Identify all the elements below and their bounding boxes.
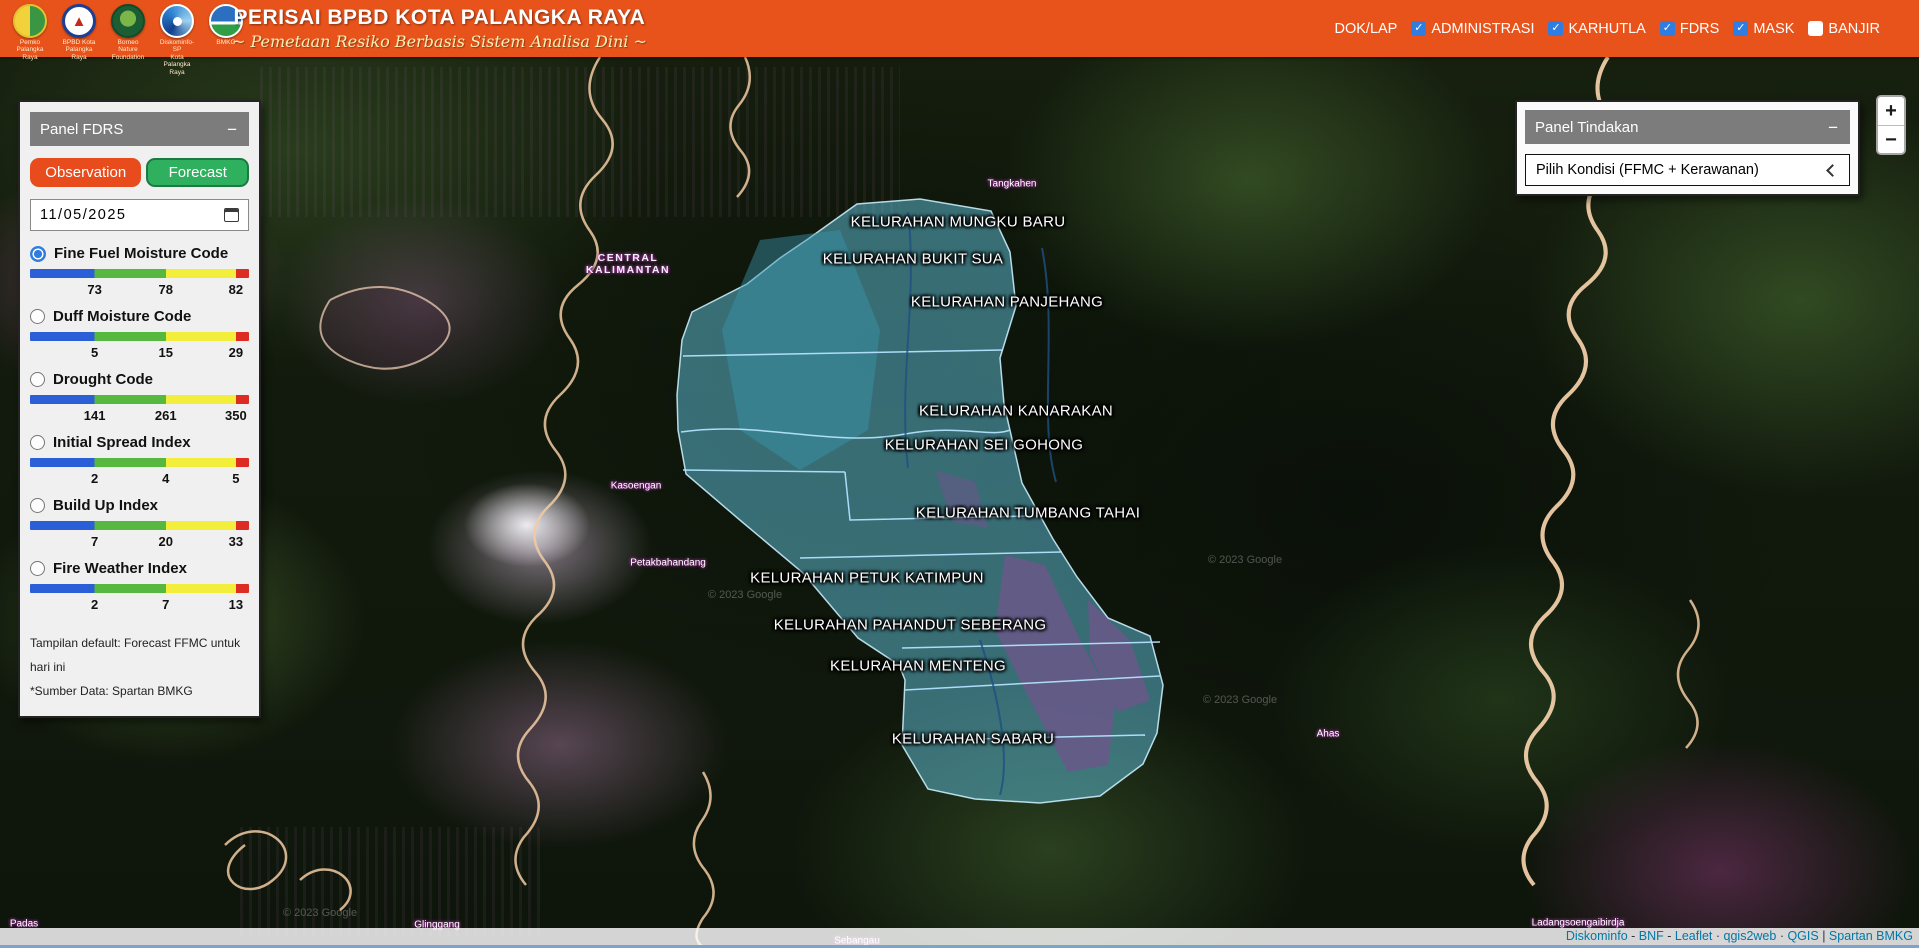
threshold-value: 2 xyxy=(91,597,98,612)
index-thresholds: 2 4 5 xyxy=(30,470,249,487)
threshold-value: 82 xyxy=(229,282,243,297)
kelurahan-label: KELURAHAN PETUK KATIMPUN xyxy=(750,570,984,587)
radio-icon[interactable] xyxy=(30,498,45,513)
layer-nav: DOK/LAP ✓ ADMINISTRASI ✓ KARHUTLA ✓ FDRS… xyxy=(1335,0,1881,57)
layer-toggle[interactable]: ✓ FDRS xyxy=(1660,21,1719,37)
kelurahan-label: KELURAHAN TUMBANG TAHAI xyxy=(916,505,1140,522)
index-radio-row[interactable]: Drought Code xyxy=(30,371,249,388)
place-label: Ahas xyxy=(1317,729,1340,740)
kelurahan-label: KELURAHAN MENTENG xyxy=(830,658,1006,675)
kelurahan-label: KELURAHAN PAHANDUT SEBERANG xyxy=(774,617,1047,634)
layer-toggle[interactable]: ✓ ADMINISTRASI xyxy=(1411,21,1534,37)
google-watermark: © 2023 Google xyxy=(708,589,782,601)
date-input[interactable]: 11/05/2025 xyxy=(30,199,249,231)
checkbox-icon[interactable]: ✓ xyxy=(1548,21,1563,36)
index-label: Duff Moisture Code xyxy=(53,308,191,325)
index-label: Initial Spread Index xyxy=(53,434,191,451)
panel-fdrs-title: Panel FDRS xyxy=(40,121,123,138)
google-watermark: © 2023 Google xyxy=(1208,554,1282,566)
diskominfo-logo: Diskominfo-SP Kota Palangka Raya xyxy=(157,4,197,76)
layer-toggle[interactable]: ✓ MASK xyxy=(1733,21,1794,37)
index-scale-bar xyxy=(30,521,249,530)
select-chevron-icon xyxy=(1826,164,1839,177)
panel-footnotes: Tampilan default: Forecast FFMC untuk ha… xyxy=(30,631,249,703)
threshold-value: 15 xyxy=(159,345,173,360)
google-watermark: © 2023 Google xyxy=(283,907,357,919)
checkbox-icon[interactable]: ✓ xyxy=(1733,21,1748,36)
attribution-link[interactable]: Diskominfo xyxy=(1566,929,1628,943)
threshold-value: 13 xyxy=(229,597,243,612)
fdrs-index-option: Duff Moisture Code 5 15 29 xyxy=(30,308,249,361)
logo-caption: Pemko Palangka Raya xyxy=(10,39,50,61)
index-thresholds: 7 20 33 xyxy=(30,533,249,550)
panel-tindakan-collapse-button[interactable]: − xyxy=(1826,119,1840,136)
kelurahan-label: KELURAHAN SEI GOHONG xyxy=(885,437,1084,454)
pemko-logo: Pemko Palangka Raya xyxy=(10,4,50,76)
logo-caption: Borneo Nature Foundation xyxy=(108,39,148,61)
kelurahan-label: KELURAHAN BUKIT SUA xyxy=(823,251,1003,268)
radio-icon[interactable] xyxy=(30,435,45,450)
footnote-source: *Sumber Data: Spartan BMKG xyxy=(30,679,249,703)
panel-fdrs-collapse-button[interactable]: − xyxy=(225,121,239,138)
index-label: Fine Fuel Moisture Code xyxy=(54,245,228,262)
kondisi-select[interactable]: Pilih Kondisi (FFMC + Kerawanan) xyxy=(1525,154,1850,186)
fdrs-index-option: Drought Code 141 261 350 xyxy=(30,371,249,424)
app-header: Pemko Palangka Raya ▲ BPBD Kota Palangka… xyxy=(0,0,1919,57)
map-attribution: Diskominfo - BNF - Leaflet · qgis2web · … xyxy=(0,928,1919,945)
kelurahan-label: KELURAHAN MUNGKU BARU xyxy=(851,214,1066,231)
threshold-value: 78 xyxy=(159,282,173,297)
layer-toggle[interactable]: ✓ KARHUTLA xyxy=(1548,21,1645,37)
logo-row: Pemko Palangka Raya ▲ BPBD Kota Palangka… xyxy=(10,4,246,76)
radio-icon[interactable] xyxy=(30,246,46,262)
layer-label: ADMINISTRASI xyxy=(1431,21,1534,37)
index-scale-bar xyxy=(30,584,249,593)
place-label: Kasoengan xyxy=(611,481,662,492)
checkbox-icon[interactable]: ✓ xyxy=(1660,21,1675,36)
threshold-value: 73 xyxy=(87,282,101,297)
panel-fdrs: Panel FDRS − Observation Forecast 11/05/… xyxy=(18,100,261,718)
place-label: Petakbahandang xyxy=(630,558,706,569)
attribution-separator: - xyxy=(1664,929,1675,943)
doklap-link[interactable]: DOK/LAP xyxy=(1335,21,1398,37)
index-radio-row[interactable]: Fire Weather Index xyxy=(30,560,249,577)
radio-icon[interactable] xyxy=(30,561,45,576)
attribution-separator: - xyxy=(1628,929,1639,943)
map-zoom-control: + − xyxy=(1876,95,1906,155)
layer-label: KARHUTLA xyxy=(1568,21,1645,37)
index-radio-row[interactable]: Build Up Index xyxy=(30,497,249,514)
index-scale-bar xyxy=(30,458,249,467)
threshold-value: 141 xyxy=(84,408,106,423)
index-scale-bar xyxy=(30,332,249,341)
threshold-value: 350 xyxy=(225,408,247,423)
index-scale-bar xyxy=(30,269,249,278)
index-thresholds: 141 261 350 xyxy=(30,407,249,424)
attribution-separator: · xyxy=(1712,929,1723,943)
index-radio-row[interactable]: Fine Fuel Moisture Code xyxy=(30,245,249,262)
fdrs-index-option: Fine Fuel Moisture Code 73 78 82 xyxy=(30,245,249,298)
fdrs-index-option: Fire Weather Index 2 7 13 xyxy=(30,560,249,613)
index-label: Drought Code xyxy=(53,371,153,388)
index-radio-row[interactable]: Initial Spread Index xyxy=(30,434,249,451)
attribution-link[interactable]: Leaflet xyxy=(1675,929,1713,943)
observation-button[interactable]: Observation xyxy=(30,158,141,187)
index-scale-bar xyxy=(30,395,249,404)
attribution-link[interactable]: Spartan BMKG xyxy=(1829,929,1913,943)
bpbd-logo-icon: ▲ xyxy=(62,4,96,38)
app-title: PERISAI BPBD KOTA PALANGKA RAYA xyxy=(232,6,647,30)
radio-icon[interactable] xyxy=(30,372,45,387)
layer-label: MASK xyxy=(1753,21,1794,37)
layer-label: BANJIR xyxy=(1828,21,1880,37)
layer-toggle[interactable]: BANJIR xyxy=(1808,21,1880,37)
fdrs-index-list: Fine Fuel Moisture Code 73 78 82 Duff Mo… xyxy=(30,245,249,613)
threshold-value: 261 xyxy=(155,408,177,423)
layer-label: FDRS xyxy=(1680,21,1719,37)
calendar-icon[interactable] xyxy=(224,208,239,222)
attribution-link[interactable]: BNF xyxy=(1639,929,1664,943)
threshold-value: 5 xyxy=(232,471,239,486)
fdrs-index-option: Build Up Index 7 20 33 xyxy=(30,497,249,550)
mode-button-row: Observation Forecast xyxy=(30,158,249,187)
app-title-block: PERISAI BPBD KOTA PALANGKA RAYA ~ Pemeta… xyxy=(232,6,647,51)
threshold-value: 2 xyxy=(91,471,98,486)
bpbd-logo: ▲ BPBD Kota Palangka Raya xyxy=(59,4,99,76)
pemko-logo-icon xyxy=(13,4,47,38)
threshold-value: 5 xyxy=(91,345,98,360)
threshold-value: 29 xyxy=(229,345,243,360)
kelurahan-label: KELURAHAN PANJEHANG xyxy=(911,294,1103,311)
index-label: Build Up Index xyxy=(53,497,158,514)
bnf-logo-icon xyxy=(111,4,145,38)
app-subtitle: ~ Pemetaan Resiko Berbasis Sistem Analis… xyxy=(232,32,647,51)
index-thresholds: 5 15 29 xyxy=(30,344,249,361)
diskominfo-logo-icon xyxy=(160,4,194,38)
place-label: CENTRAL KALIMANTAN xyxy=(586,252,670,276)
logo-caption: Diskominfo-SP Kota Palangka Raya xyxy=(157,39,197,76)
app-window: KELURAHAN MUNGKU BARUKELURAHAN BUKIT SUA… xyxy=(0,0,1919,948)
layer-toggle-group: ✓ ADMINISTRASI ✓ KARHUTLA ✓ FDRS ✓ MASK … xyxy=(1411,21,1880,37)
threshold-value: 20 xyxy=(159,534,173,549)
kelurahan-label: KELURAHAN KANARAKAN xyxy=(919,403,1113,420)
threshold-value: 4 xyxy=(162,471,169,486)
panel-tindakan-header: Panel Tindakan − xyxy=(1525,110,1850,144)
attribution-separator: | xyxy=(1819,929,1829,943)
date-value: 11/05/2025 xyxy=(40,207,127,223)
checkbox-icon[interactable]: ✓ xyxy=(1411,21,1426,36)
panel-tindakan-title: Panel Tindakan xyxy=(1535,119,1638,136)
bnf-logo: Borneo Nature Foundation xyxy=(108,4,148,76)
forecast-button[interactable]: Forecast xyxy=(146,158,249,187)
kelurahan-label: KELURAHAN SABARU xyxy=(892,731,1054,748)
kondisi-select-value: Pilih Kondisi (FFMC + Kerawanan) xyxy=(1536,162,1759,178)
threshold-value: 33 xyxy=(229,534,243,549)
panel-fdrs-header: Panel FDRS − xyxy=(30,112,249,146)
radio-icon[interactable] xyxy=(30,309,45,324)
footnote-default: Tampilan default: Forecast FFMC untuk ha… xyxy=(30,631,249,679)
place-label: Ladangsoengaibirdja xyxy=(1532,918,1625,929)
logo-caption: BPBD Kota Palangka Raya xyxy=(59,39,99,61)
index-radio-row[interactable]: Duff Moisture Code xyxy=(30,308,249,325)
triangle-icon: ▲ xyxy=(72,14,87,29)
threshold-value: 7 xyxy=(162,597,169,612)
panel-tindakan: Panel Tindakan − Pilih Kondisi (FFMC + K… xyxy=(1515,100,1860,196)
place-label: Tangkahen xyxy=(988,179,1037,190)
attribution-separator: · xyxy=(1776,929,1787,943)
google-watermark: © 2023 Google xyxy=(1203,694,1277,706)
attribution-link[interactable]: qgis2web xyxy=(1724,929,1777,943)
checkbox-icon[interactable] xyxy=(1808,21,1823,36)
zoom-out-button[interactable]: − xyxy=(1878,125,1904,153)
index-thresholds: 73 78 82 xyxy=(30,281,249,298)
swirl-icon xyxy=(173,17,182,26)
index-thresholds: 2 7 13 xyxy=(30,596,249,613)
zoom-in-button[interactable]: + xyxy=(1878,97,1904,125)
threshold-value: 7 xyxy=(91,534,98,549)
index-label: Fire Weather Index xyxy=(53,560,187,577)
fdrs-index-option: Initial Spread Index 2 4 5 xyxy=(30,434,249,487)
attribution-link[interactable]: QGIS xyxy=(1787,929,1818,943)
